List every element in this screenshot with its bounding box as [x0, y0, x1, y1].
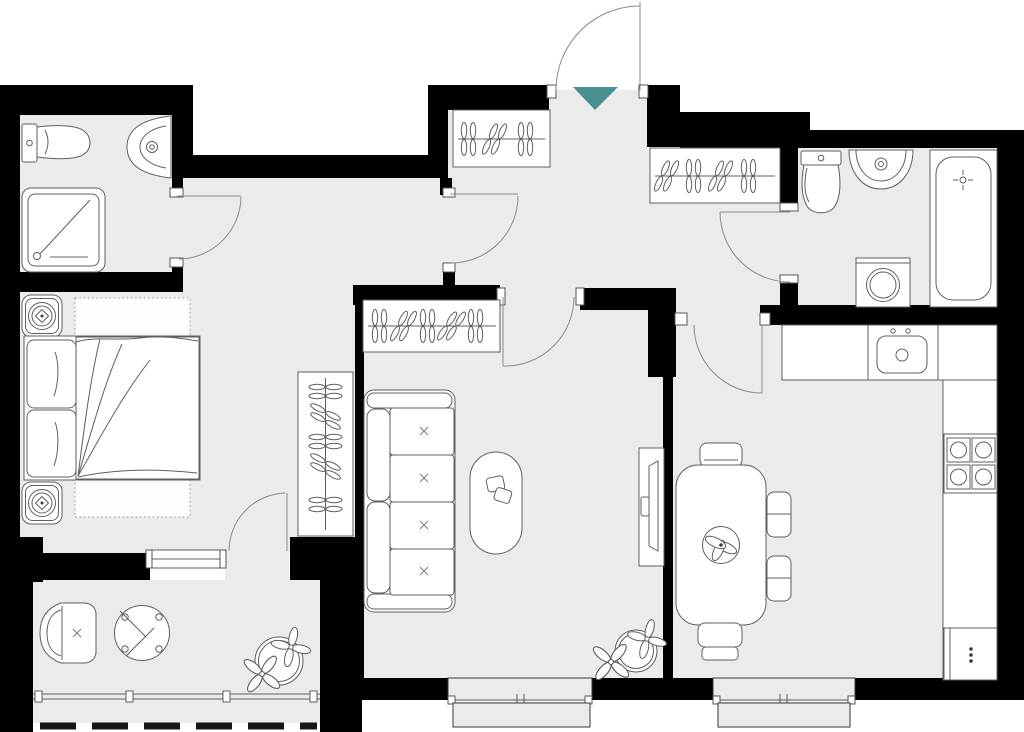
- round-table: [115, 606, 170, 661]
- window-sill: [453, 703, 590, 727]
- tv-stand: [639, 448, 664, 566]
- dining-chair-bottom: [698, 623, 742, 660]
- bathroom-large-door-gap: [780, 210, 798, 275]
- balcony-door-gap: [225, 553, 289, 580]
- living-room-window: [448, 678, 592, 727]
- hob-four-burner: [944, 434, 997, 493]
- washing-machine: [856, 258, 910, 307]
- shower-cabin: [22, 188, 105, 272]
- entrance-door: [556, 2, 640, 90]
- corridor-floor: [183, 178, 448, 292]
- toilet: [801, 151, 841, 213]
- floor-plan: apartment-floor-plan: [0, 0, 1024, 732]
- dining-chair-right-1: [767, 492, 791, 537]
- blanket: [76, 337, 199, 479]
- bathroom-small-door-gap: [172, 197, 183, 258]
- table-plant: [703, 527, 740, 564]
- bedroom-window: [146, 550, 226, 568]
- wardrobe-rail-right: [650, 148, 780, 203]
- sofa: [364, 390, 455, 612]
- wardrobe-rail-left: [453, 110, 550, 167]
- coffee-table: [470, 452, 522, 554]
- kitchen-window: [713, 678, 855, 727]
- dining-chair-right-2: [767, 556, 791, 601]
- nightstand-lamp-top: [22, 295, 62, 337]
- living-room-wardrobe-rail: [363, 300, 500, 352]
- bedroom-wardrobe-rail: [298, 372, 353, 536]
- toilet: [22, 124, 90, 162]
- fridge: [944, 628, 997, 680]
- dining-table: [676, 465, 766, 625]
- bathtub: [930, 150, 997, 307]
- floor-plan-stage: apartment-floor-plan: [0, 0, 1024, 732]
- window-sill: [718, 703, 850, 727]
- dining-chair-top: [700, 443, 742, 467]
- armchair: [40, 603, 96, 663]
- nightstand-lamp-bottom: [22, 482, 62, 524]
- kitchen-sink: [868, 325, 938, 380]
- double-bed: [24, 336, 200, 480]
